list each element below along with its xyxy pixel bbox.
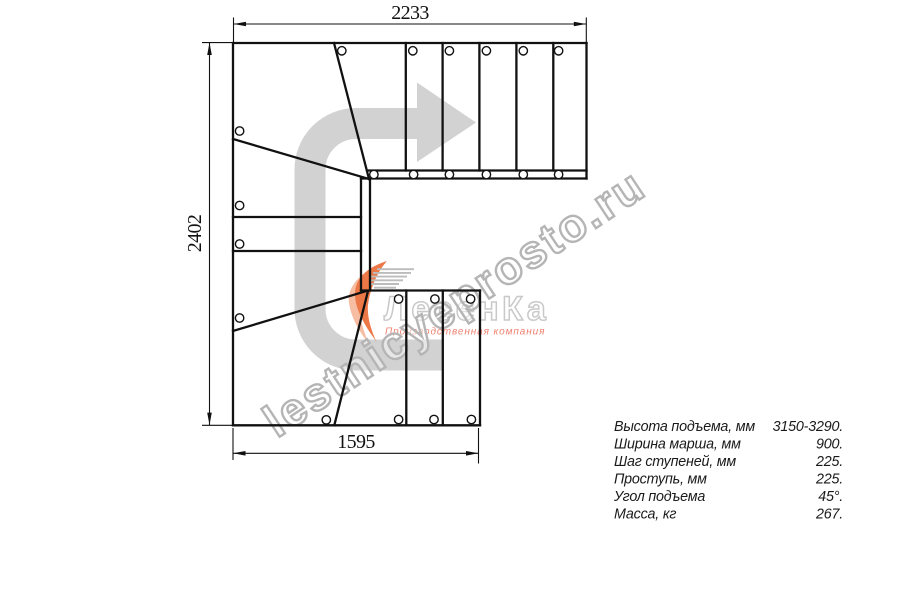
svg-text:1595: 1595 [337,431,375,453]
svg-text:Угол подъема: Угол подъема [613,489,705,505]
svg-text:45°.: 45°. [818,489,843,505]
svg-text:267.: 267. [815,507,843,523]
svg-text:225.: 225. [815,454,843,470]
svg-text:225.: 225. [815,472,843,488]
svg-text:2233: 2233 [391,2,429,24]
svg-text:Высота подъема, мм: Высота подъема, мм [614,419,755,435]
svg-text:Проступь, мм: Проступь, мм [614,472,707,488]
svg-text:3150-3290.: 3150-3290. [773,419,843,435]
svg-text:Шаг ступеней, мм: Шаг ступеней, мм [614,454,736,470]
svg-text:900.: 900. [816,437,843,453]
svg-text:2402: 2402 [184,215,206,253]
svg-text:Масса, кг: Масса, кг [614,507,676,523]
svg-text:Ширина марша, мм: Ширина марша, мм [614,437,741,453]
